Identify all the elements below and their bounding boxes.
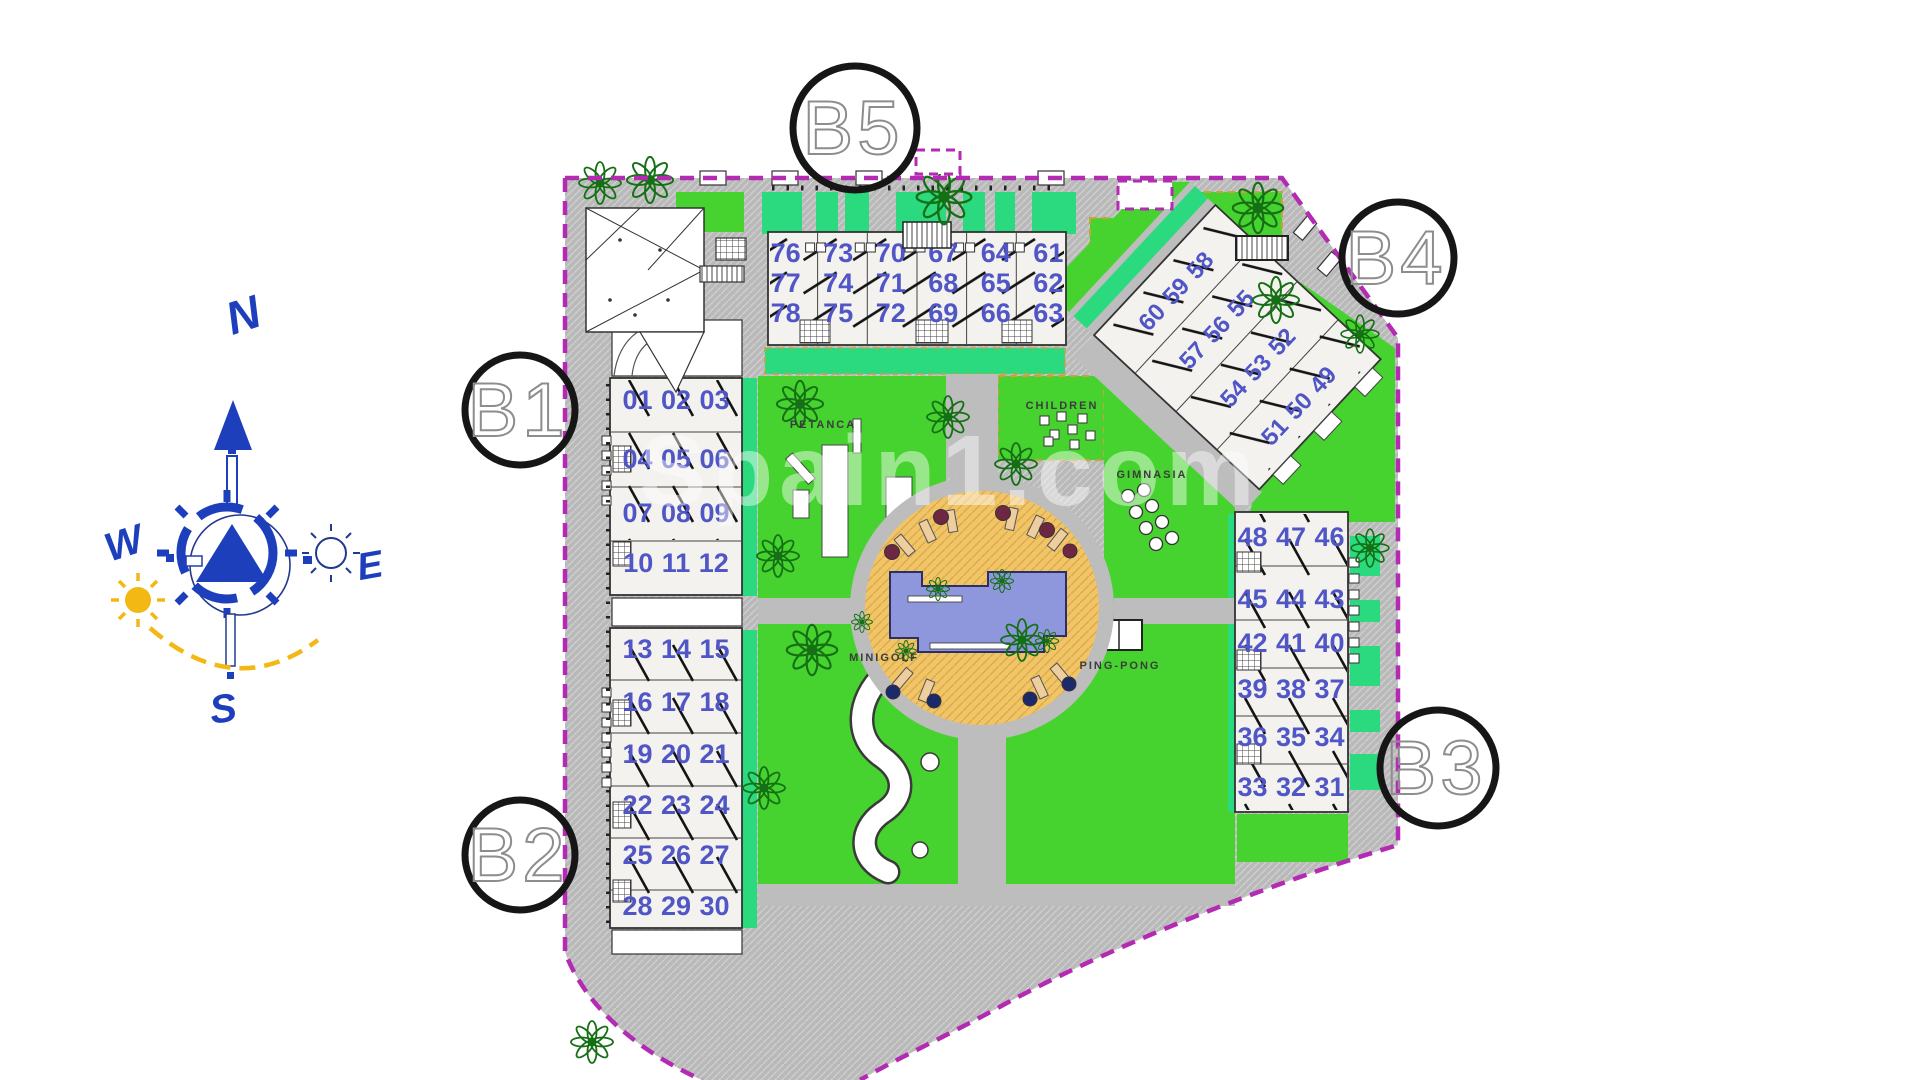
petanca-label: PETANCA: [790, 419, 856, 431]
path-south: [958, 736, 1006, 886]
driveway-between-b1-b2: [612, 598, 742, 626]
planter-top-6: [995, 192, 1015, 234]
b3-units-row3: 42 41 40: [1237, 628, 1344, 658]
planter-top-7: [1032, 192, 1076, 234]
b3-label: B3: [1386, 726, 1487, 811]
planter-b3-east-1: [1350, 536, 1380, 576]
west-dash: [166, 554, 174, 562]
b1-units-row4: 10 11 12: [623, 548, 729, 578]
south-stem: [226, 614, 235, 666]
b3-units-row5: 36 35 34: [1237, 722, 1344, 752]
path-bottom: [758, 884, 1235, 906]
service-plot-1: [916, 150, 960, 174]
east-dash: [303, 556, 312, 564]
planter-top-5: [963, 192, 985, 234]
compass-rose: N W E S: [99, 285, 387, 733]
west-tick: [186, 556, 202, 566]
pergola-b4: [1236, 236, 1288, 260]
b2-units-row4: 22 23 24: [622, 790, 729, 820]
planter-top-1: [762, 192, 802, 234]
b4-label: B4: [1346, 216, 1447, 301]
ramp-structure: [700, 266, 744, 282]
b3-units-row4: 39 38 37: [1237, 674, 1344, 704]
pingpong-label: PING-PONG: [1080, 660, 1161, 672]
b5-units-row3: 78 75 72 69 66 63: [771, 298, 1064, 328]
planter-b3-east-3: [1350, 646, 1380, 686]
sun-outline-icon: [302, 524, 360, 582]
south-label: S: [207, 685, 240, 732]
north-label: N: [219, 285, 267, 345]
building-b2: 13 14 15 16 17 18 19 20 21 22 23 24 25 2…: [602, 628, 742, 928]
sun-icon: [111, 573, 165, 627]
children-label: CHILDREN: [1026, 400, 1099, 412]
planter-b3-east-4: [1350, 710, 1380, 732]
tree-icon: [571, 1021, 613, 1063]
driveway-below-b2: [612, 930, 742, 954]
pool-lane: [908, 596, 962, 602]
b2-units-row5: 25 26 27: [622, 840, 729, 870]
north-arrow-icon: [214, 400, 252, 450]
balcony-teeth: [602, 688, 611, 787]
site-plan-page: 76 73 70 67 64 61 77 74 71 68 65 62 78 7…: [0, 0, 1920, 1080]
b2-units-row6: 28 29 30: [622, 891, 729, 921]
south-dash: [227, 672, 234, 679]
b5-label: B5: [803, 86, 904, 171]
path-west: [758, 598, 852, 624]
site-plan-image: 76 73 70 67 64 61 77 74 71 68 65 62 78 7…: [0, 0, 1920, 1080]
utility-structure: [716, 238, 746, 260]
planter-below-b5: [765, 348, 1065, 374]
b3-units-row6: 33 32 31: [1237, 772, 1344, 802]
service-plot-2: [1118, 181, 1172, 209]
b2-units-row3: 19 20 21: [622, 739, 729, 769]
planter-b3-east-5: [1350, 754, 1380, 790]
north-arrow-dash: [228, 448, 236, 454]
b2-label: B2: [468, 813, 569, 898]
lawn-below-b3: [1237, 814, 1348, 862]
b2-units-row1: 13 14 15: [622, 634, 729, 664]
building-b5: 76 73 70 67 64 61 77 74 71 68 65 62 78 7…: [768, 232, 1066, 345]
minigolf-label: MINIGOLF: [849, 652, 919, 664]
gimnasia-label: GIMNASIA: [1117, 469, 1188, 481]
b1-label: B1: [468, 368, 569, 453]
b5-units-row2: 77 74 71 68 65 62: [771, 268, 1064, 298]
planter-top-2: [816, 192, 838, 234]
b3-units-row2: 45 44 43: [1237, 584, 1344, 614]
east-label: E: [354, 543, 388, 589]
planter-top-3: [845, 192, 869, 234]
building-b3: 48 47 46 45 44 43 42 41 40 39 38 37 36 3…: [1235, 512, 1359, 812]
b2-units-row2: 16 17 18: [622, 687, 729, 717]
pool-lane: [930, 643, 1010, 649]
west-label: W: [99, 516, 152, 571]
balcony-teeth: [1349, 558, 1359, 663]
pergola: [903, 222, 951, 248]
